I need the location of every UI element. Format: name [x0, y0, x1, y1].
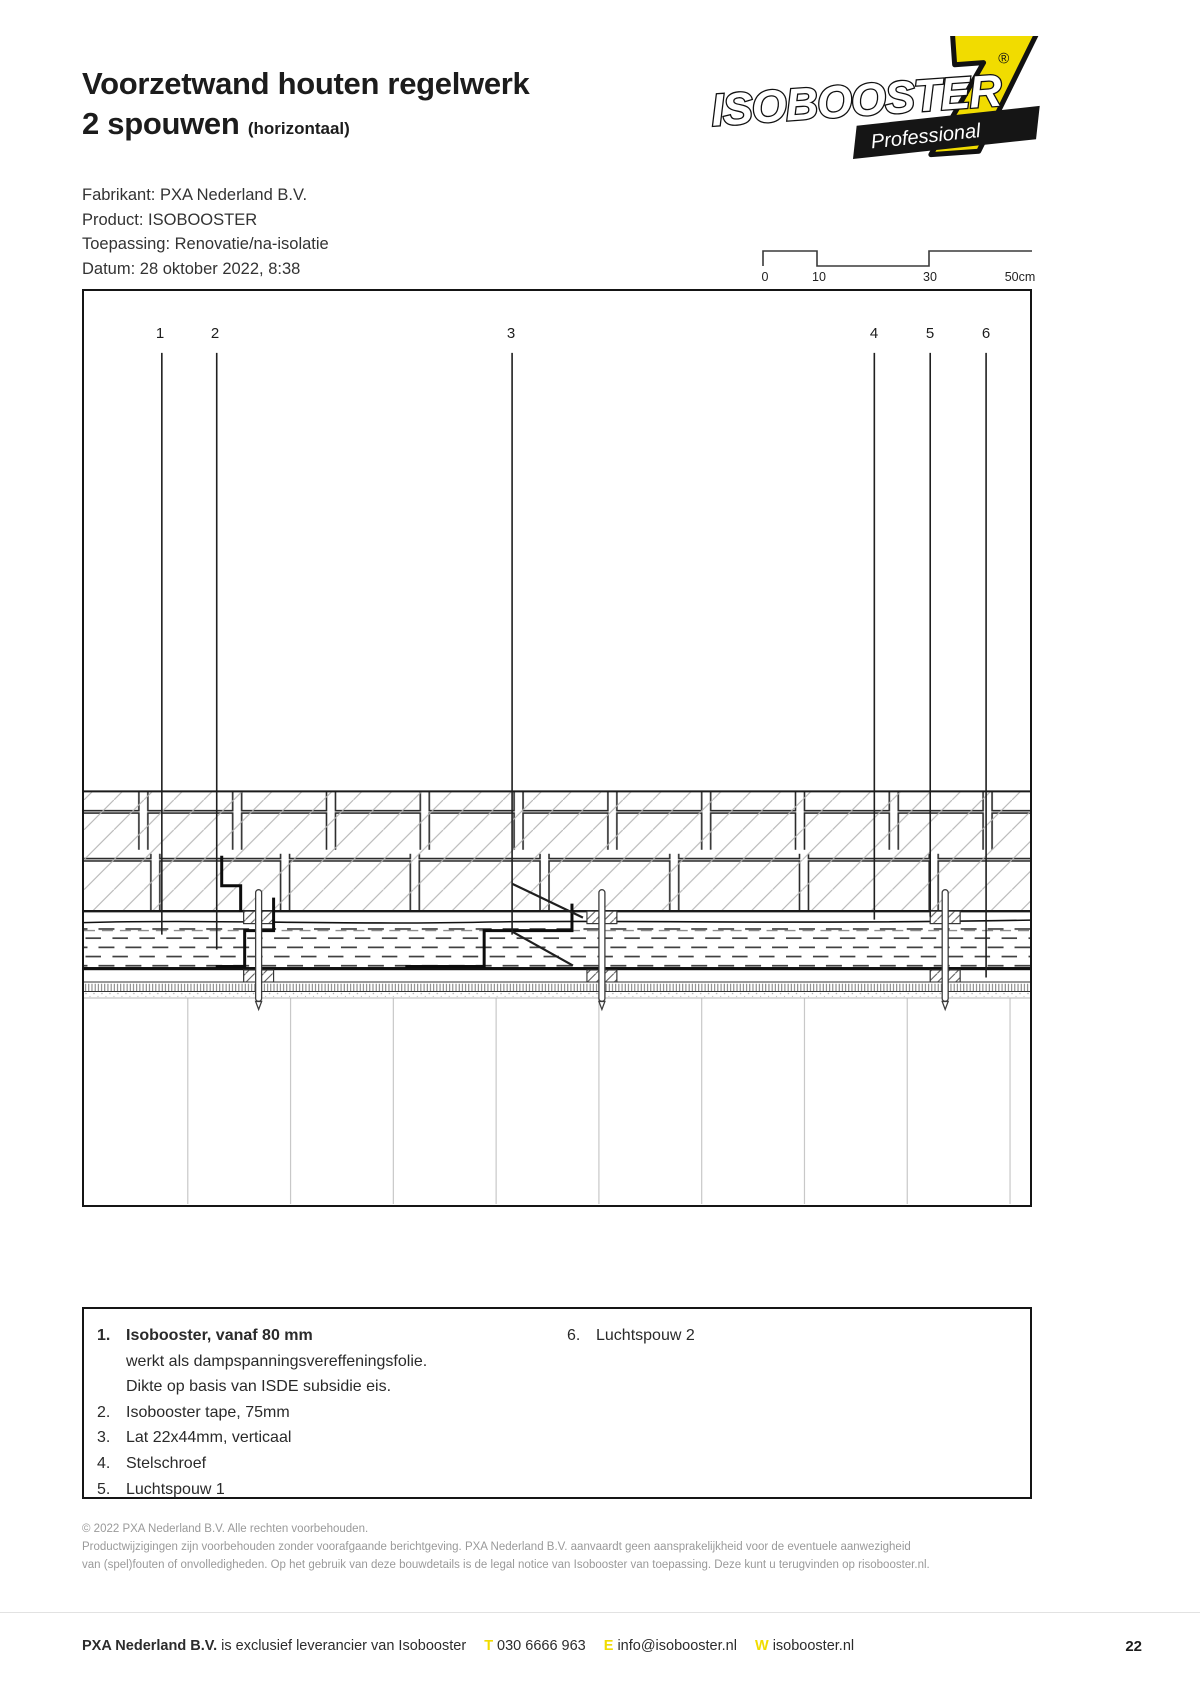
technical-drawing-frame: [82, 289, 1032, 1207]
footer-company: PXA Nederland B.V.: [82, 1638, 217, 1654]
footer-phone-label: T: [484, 1638, 493, 1654]
footer-phone: 030 6666 963: [497, 1638, 586, 1654]
legend-item-1-desc-2: Dikte op basis van ISDE subsidie eis.: [126, 1374, 524, 1400]
footer-email-label: E: [604, 1638, 614, 1654]
footer-tagline: is exclusief leverancier van Isobooster: [217, 1638, 466, 1654]
legend-item-3-num: 3.: [97, 1425, 110, 1451]
scale-bar: 0 10 30 50cm: [762, 244, 1034, 284]
disclaimer: © 2022 PXA Nederland B.V. Alle rechten v…: [82, 1520, 1042, 1574]
disclaimer-line-1: © 2022 PXA Nederland B.V. Alle rechten v…: [82, 1520, 1042, 1538]
insulation-layer: [84, 920, 1030, 970]
product-info: Fabrikant: PXA Nederland B.V. Product: I…: [82, 183, 329, 281]
callout-5: 5: [926, 325, 934, 342]
legend-item-5: 5. Luchtspouw 1: [84, 1477, 524, 1503]
board-joint-lines: [188, 998, 1010, 1204]
legend-item-2-num: 2.: [97, 1400, 110, 1426]
legend-item-2-title: Isobooster tape, 75mm: [126, 1404, 290, 1421]
footer-web: isobooster.nl: [773, 1638, 854, 1654]
legend-item-6-title: Luchtspouw 2: [596, 1327, 695, 1344]
legend-item-4-title: Stelschroef: [126, 1455, 206, 1472]
legend-item-4-num: 4.: [97, 1451, 110, 1477]
logo-registered-mark: ®: [998, 50, 1010, 68]
info-datum: Datum: 28 oktober 2022, 8:38: [82, 257, 329, 282]
legend-item-2: 2. Isobooster tape, 75mm: [84, 1400, 524, 1426]
page-title-suffix: (horizontaal): [248, 119, 350, 138]
callout-6: 6: [982, 325, 990, 342]
legend-item-6: 6. Luchtspouw 2: [554, 1323, 974, 1349]
technical-drawing: [84, 291, 1030, 1205]
legend-item-3: 3. Lat 22x44mm, verticaal: [84, 1425, 524, 1451]
page-title-line1: Voorzetwand houten regelwerk: [82, 64, 530, 104]
info-product: Product: ISOBOOSTER: [82, 208, 329, 233]
scale-label-50: 50cm: [1005, 270, 1036, 284]
page-number: 22: [1125, 1638, 1142, 1655]
legend-left-column: 1. Isobooster, vanaf 80 mm werkt als dam…: [84, 1323, 524, 1502]
legend-item-1: 1. Isobooster, vanaf 80 mm werkt als dam…: [84, 1323, 524, 1400]
info-fabrikant: Fabrikant: PXA Nederland B.V.: [82, 183, 329, 208]
footer-web-label: W: [755, 1638, 769, 1654]
scale-label-0: 0: [762, 270, 769, 284]
legend-item-4: 4. Stelschroef: [84, 1451, 524, 1477]
page-title: Voorzetwand houten regelwerk 2 spouwen (…: [82, 64, 530, 149]
callout-4: 4: [870, 325, 878, 342]
legend-right-column: 6. Luchtspouw 2: [554, 1323, 974, 1349]
footer-email: info@isobooster.nl: [617, 1638, 737, 1654]
legend-item-3-title: Lat 22x44mm, verticaal: [126, 1429, 291, 1446]
isobooster-logo: ISOBOOSTER ® Professional: [705, 36, 1055, 166]
scale-label-10: 10: [812, 270, 826, 284]
info-toepassing: Toepassing: Renovatie/na-isolatie: [82, 232, 329, 257]
callout-2: 2: [211, 325, 219, 342]
page-title-line2: 2 spouwen (horizontaal): [82, 104, 530, 149]
callout-1: 1: [156, 325, 164, 342]
legend-item-1-desc-1: werkt als dampspanningsvereffeningsfolie…: [126, 1349, 524, 1375]
legend-box: 1. Isobooster, vanaf 80 mm werkt als dam…: [82, 1307, 1032, 1499]
legend-item-1-num: 1.: [97, 1323, 110, 1349]
legend-item-5-title: Luchtspouw 1: [126, 1481, 225, 1498]
scale-bar-line: [762, 244, 1034, 270]
legend-item-6-num: 6.: [567, 1323, 580, 1349]
legend-item-5-num: 5.: [97, 1477, 110, 1503]
isobooster-logo-graphic: ISOBOOSTER ® Professional: [705, 36, 1055, 166]
finish-layers: [84, 982, 1030, 998]
disclaimer-line-3: van (spel)fouten of onvolledigheden. Op …: [82, 1556, 1042, 1574]
datasheet-page: Voorzetwand houten regelwerk 2 spouwen (…: [0, 0, 1200, 1697]
brick-wall: [84, 791, 1030, 911]
disclaimer-line-2: Productwijzigingen zijn voorbehouden zon…: [82, 1538, 1042, 1556]
scale-label-30: 30: [923, 270, 937, 284]
footer-divider: [0, 1612, 1200, 1613]
legend-item-1-title: Isobooster, vanaf 80 mm: [126, 1327, 313, 1344]
footer-bar: PXA Nederland B.V. is exclusief leveranc…: [82, 1638, 854, 1654]
callout-3: 3: [507, 325, 515, 342]
